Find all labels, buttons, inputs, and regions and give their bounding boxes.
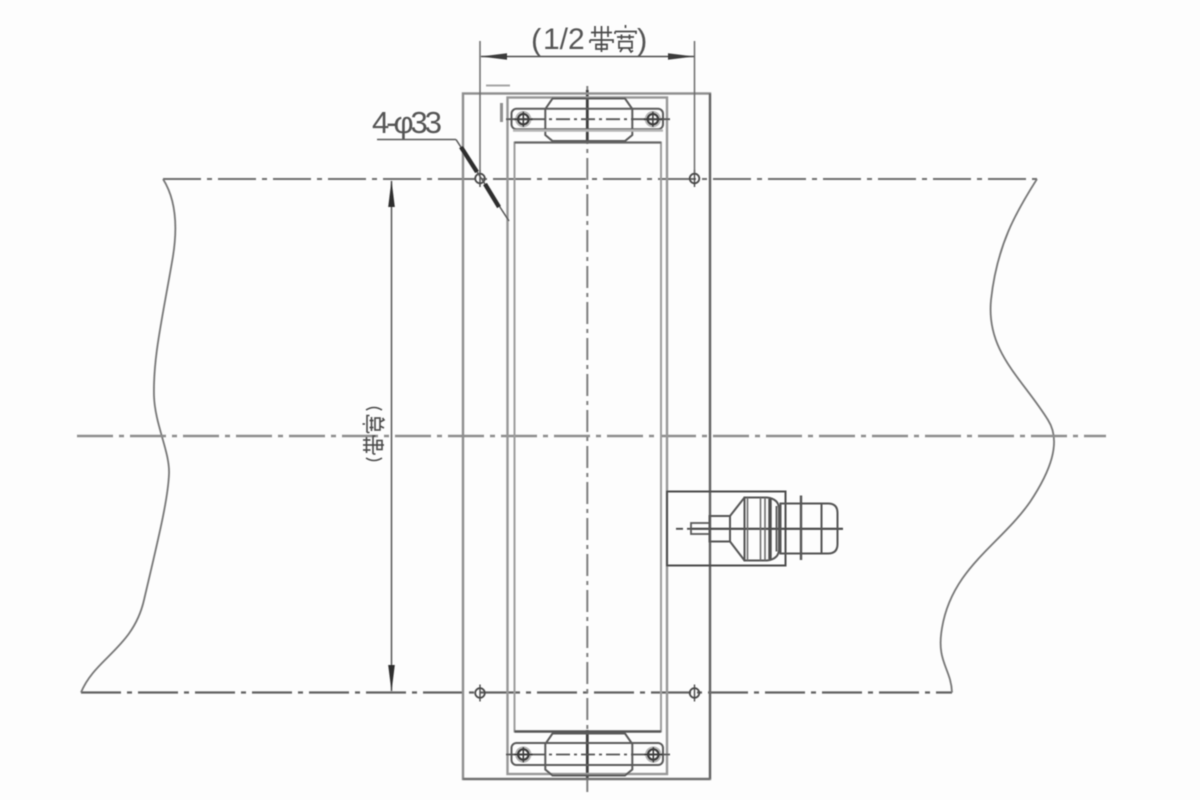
svg-text:(: ( xyxy=(531,22,542,57)
svg-text:): ) xyxy=(637,22,647,57)
svg-text:4-φ33: 4-φ33 xyxy=(372,105,442,140)
svg-text:1/2: 1/2 xyxy=(543,23,585,56)
